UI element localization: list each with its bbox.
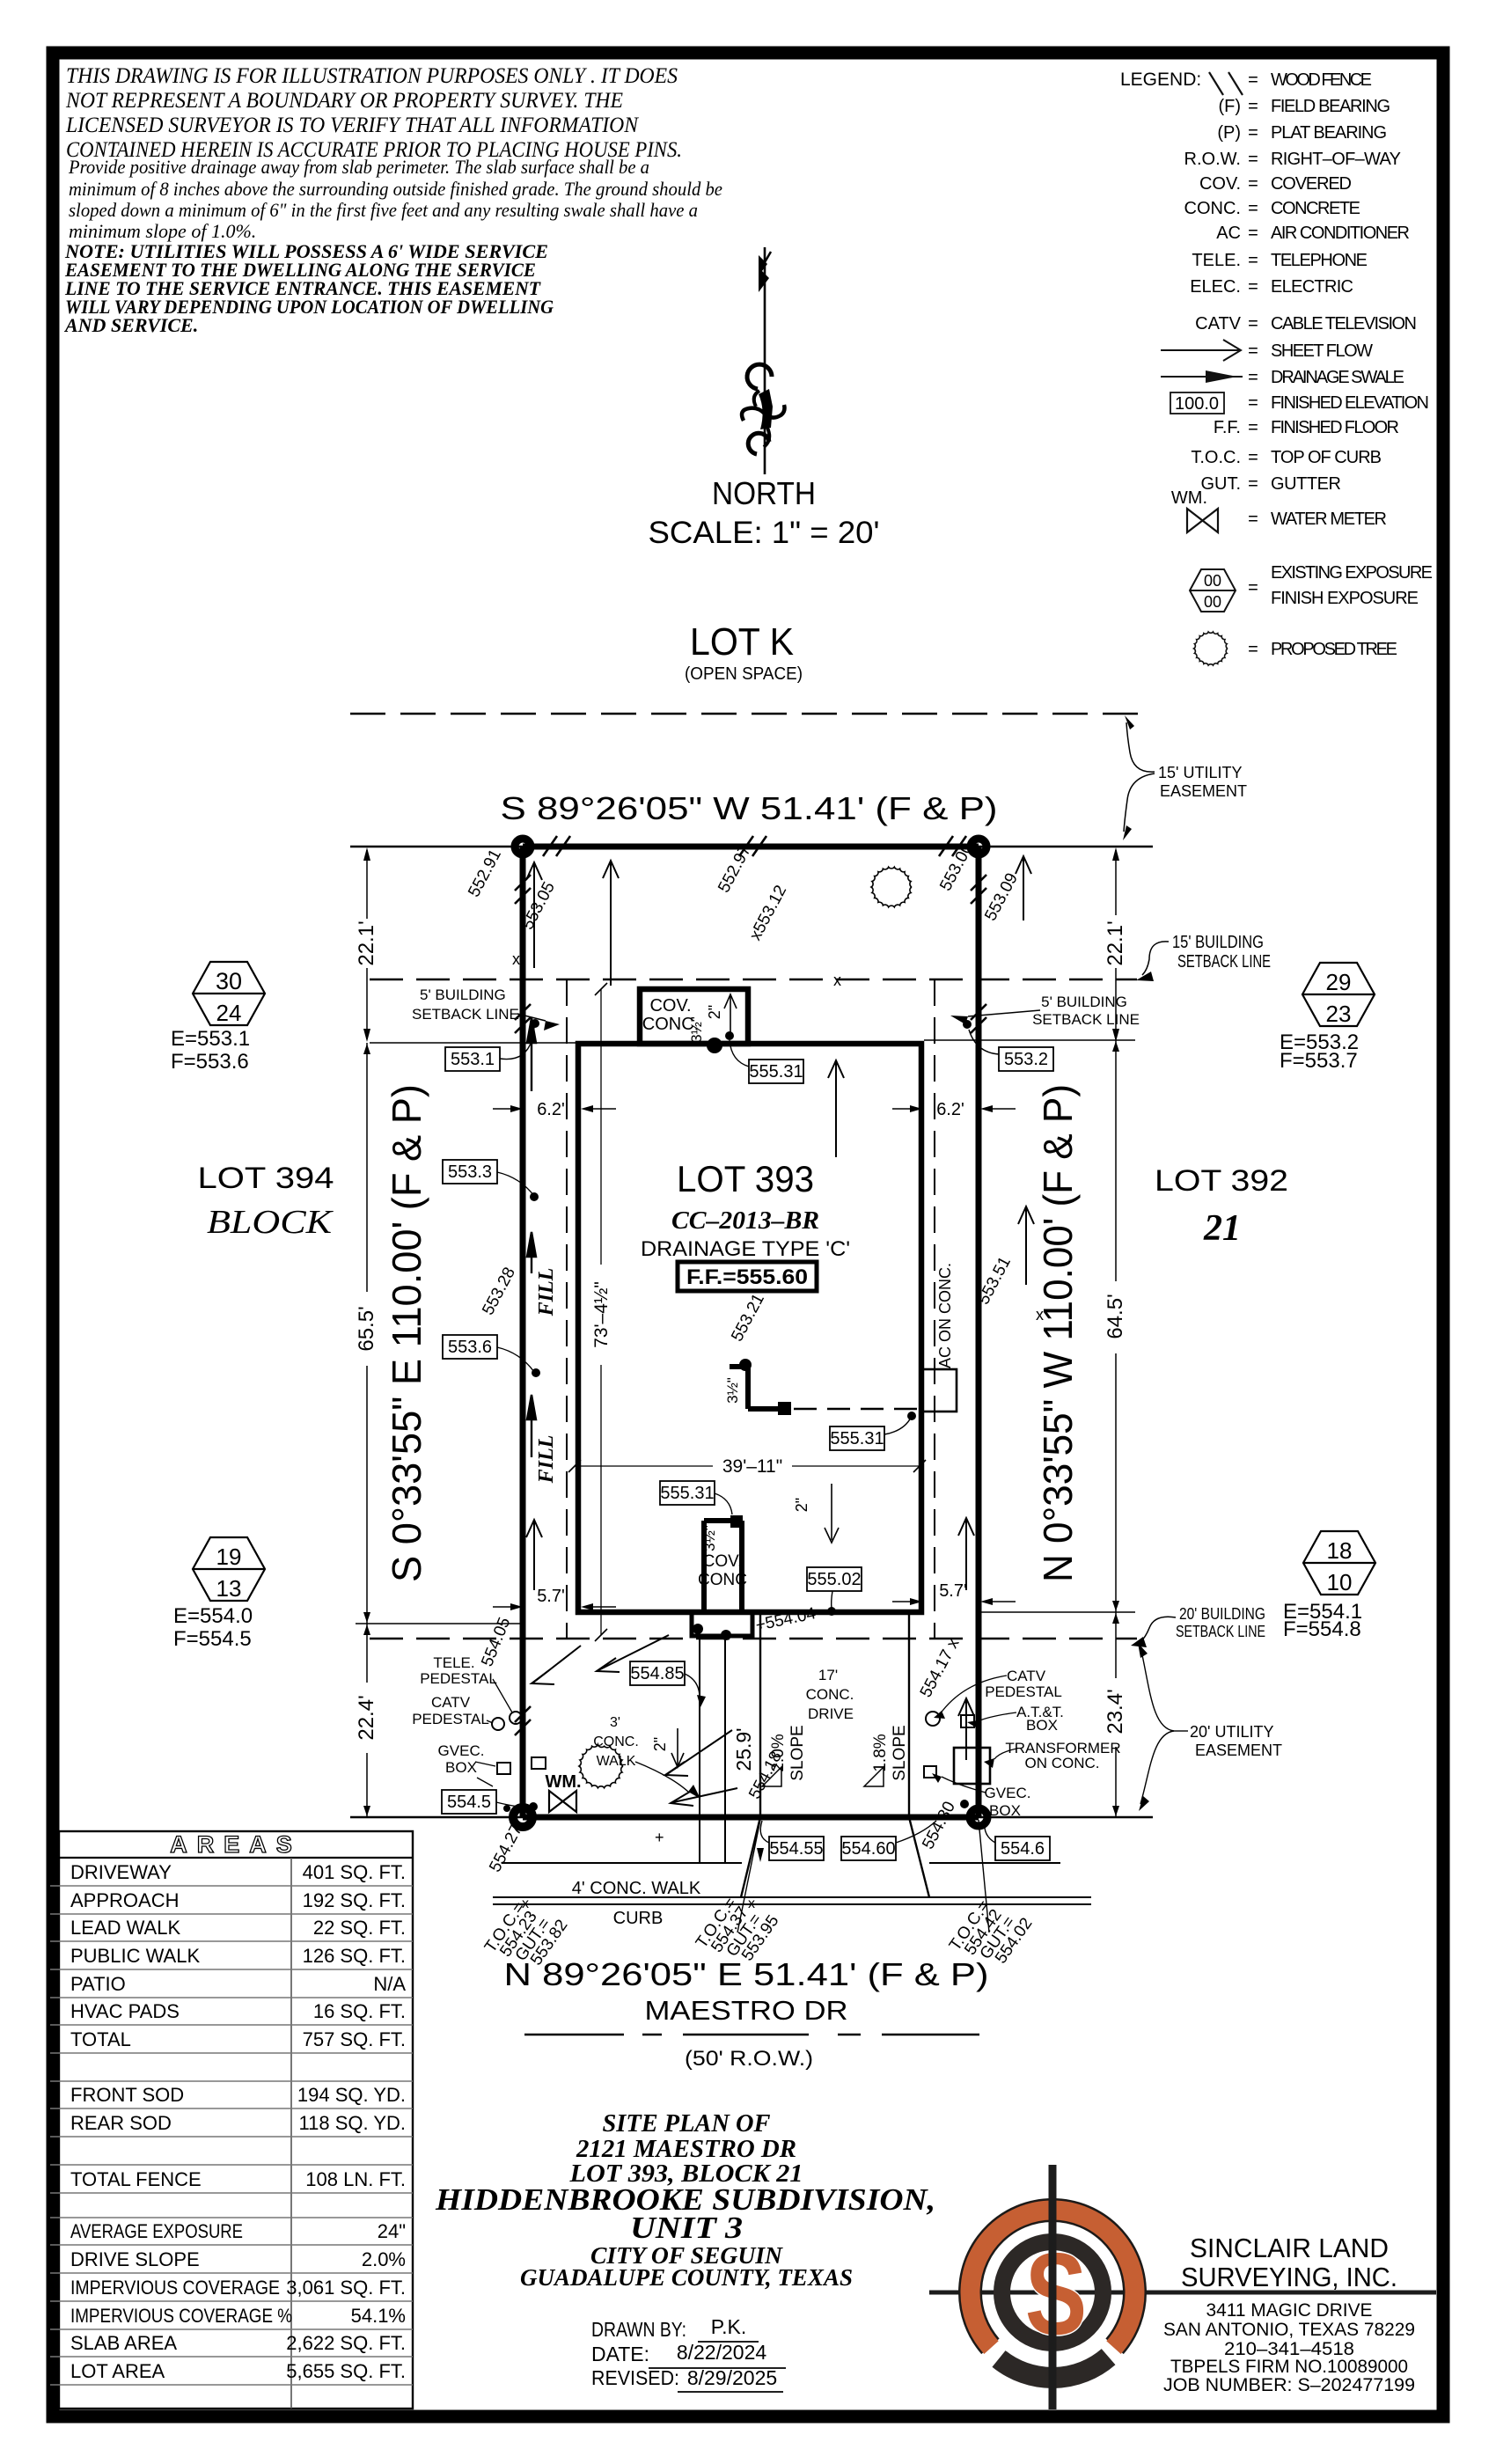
svg-text:NORTH: NORTH — [712, 475, 816, 511]
svg-text:x: x — [748, 1896, 755, 1911]
svg-text:2,622 SQ. FT.: 2,622 SQ. FT. — [286, 2332, 406, 2354]
svg-text:3': 3' — [610, 1715, 620, 1730]
svg-text:553.2: 553.2 — [1004, 1050, 1048, 1069]
svg-text:AC: AC — [1216, 224, 1241, 243]
svg-text:GVEC.: GVEC. — [438, 1742, 485, 1759]
svg-text:555.02: 555.02 — [807, 1570, 861, 1589]
svg-text:8/29/2025: 8/29/2025 — [687, 2366, 777, 2389]
svg-text:TELEPHONE: TELEPHONE — [1271, 251, 1368, 270]
svg-text:=: = — [1248, 578, 1258, 598]
svg-text:REVISED:: REVISED: — [591, 2366, 679, 2389]
svg-text:39'–11": 39'–11" — [722, 1456, 782, 1477]
svg-text:R.O.W.: R.O.W. — [1184, 150, 1241, 169]
svg-text:DRAINAGE SWALE: DRAINAGE SWALE — [1271, 368, 1404, 387]
svg-text:F.F.=555.60: F.F.=555.60 — [686, 1265, 808, 1289]
svg-text:=: = — [1248, 150, 1258, 169]
svg-text:LOT AREA: LOT AREA — [70, 2360, 165, 2382]
svg-text:AND SERVICE.: AND SERVICE. — [63, 314, 198, 336]
svg-text:BOX: BOX — [1026, 1717, 1058, 1734]
svg-text:BLOCK: BLOCK — [207, 1204, 334, 1241]
svg-text:PEDESTAL: PEDESTAL — [420, 1670, 497, 1687]
svg-text:(50' R.O.W.): (50' R.O.W.) — [685, 2047, 813, 2071]
svg-text:554.5: 554.5 — [447, 1793, 491, 1812]
svg-text:PLAT BEARING: PLAT BEARING — [1271, 123, 1387, 143]
svg-text:SETBACK LINE: SETBACK LINE — [412, 1006, 519, 1023]
svg-text:LOT 392: LOT 392 — [1155, 1164, 1288, 1198]
svg-text:6.2': 6.2' — [936, 1100, 964, 1119]
svg-text:20' UTILITY: 20' UTILITY — [1190, 1723, 1273, 1741]
svg-text:CC–2013–BR: CC–2013–BR — [671, 1207, 819, 1235]
svg-text:194 SQ. YD.: 194 SQ. YD. — [297, 2084, 406, 2106]
svg-text:S 89°26'05" W 51.41' (F & P): S 89°26'05" W 51.41' (F & P) — [501, 790, 998, 826]
svg-text:100.0: 100.0 — [1175, 394, 1219, 414]
svg-text:WALK: WALK — [597, 1754, 636, 1769]
svg-text:CURB: CURB — [613, 1909, 664, 1928]
svg-text:3,061 SQ. FT.: 3,061 SQ. FT. — [286, 2277, 406, 2299]
svg-text:=: = — [1248, 418, 1258, 437]
svg-text:LOT 394: LOT 394 — [198, 1162, 334, 1195]
svg-text:=: = — [1248, 368, 1258, 387]
svg-text:23.4': 23.4' — [1104, 1689, 1127, 1734]
svg-text:2.0%: 2.0% — [362, 2248, 406, 2270]
svg-text:15' UTILITY: 15' UTILITY — [1158, 764, 1242, 781]
svg-text:sloped down a minimum of 6" in: sloped down a minimum of 6" in the first… — [69, 199, 698, 221]
svg-text:554.27: 554.27 — [486, 1822, 526, 1875]
svg-text:HVAC PADS: HVAC PADS — [70, 2000, 180, 2022]
svg-text:Provide positive drainage away: Provide positive drainage away from slab… — [68, 156, 649, 178]
svg-text:FRONT SOD: FRONT SOD — [70, 2084, 184, 2106]
svg-text:EASEMENT: EASEMENT — [1160, 782, 1247, 800]
svg-text:+554.04: +554.04 — [754, 1604, 818, 1635]
svg-text:x: x — [522, 1896, 529, 1911]
svg-text:TELE.: TELE. — [1192, 251, 1241, 270]
svg-text:=: = — [1248, 251, 1258, 270]
svg-text:3411 MAGIC DRIVE: 3411 MAGIC DRIVE — [1206, 2299, 1373, 2321]
svg-text:FILL: FILL — [535, 1435, 558, 1485]
svg-text:22.1': 22.1' — [355, 920, 378, 965]
svg-text:553.3: 553.3 — [448, 1162, 492, 1182]
svg-text:F=553.6: F=553.6 — [171, 1050, 249, 1074]
svg-text:21: 21 — [1203, 1208, 1241, 1249]
svg-text:REAR SOD: REAR SOD — [70, 2112, 172, 2134]
svg-text:DRAINAGE TYPE 'C': DRAINAGE TYPE 'C' — [641, 1237, 850, 1261]
svg-text:GUADALUPE COUNTY, TEXAS: GUADALUPE COUNTY, TEXAS — [520, 2264, 853, 2291]
svg-text:553.09: 553.09 — [981, 870, 1022, 924]
svg-text:SETBACK LINE: SETBACK LINE — [1032, 1011, 1140, 1028]
svg-text:554.55: 554.55 — [769, 1839, 823, 1859]
svg-text:FILL: FILL — [535, 1268, 558, 1317]
svg-text:N/A: N/A — [373, 1973, 406, 1995]
svg-text:=: = — [1248, 314, 1258, 334]
svg-text:10: 10 — [1327, 1569, 1353, 1595]
svg-text:=: = — [1248, 474, 1258, 494]
svg-text:SETBACK LINE: SETBACK LINE — [1177, 952, 1271, 972]
svg-text:126 SQ. FT.: 126 SQ. FT. — [303, 1945, 406, 1967]
svg-text:=: = — [1248, 448, 1258, 467]
svg-text:19: 19 — [216, 1544, 242, 1570]
svg-text:23: 23 — [1326, 1001, 1352, 1027]
svg-text:(F): (F) — [1218, 97, 1241, 116]
svg-text:553.21: 553.21 — [728, 1291, 768, 1345]
svg-text:=: = — [1248, 640, 1258, 659]
svg-text:minimum of 8 inches above the: minimum of 8 inches above the surroundin… — [69, 178, 722, 200]
svg-text:ELECTRIC: ELECTRIC — [1271, 277, 1353, 297]
svg-text:24": 24" — [378, 2220, 406, 2242]
svg-text:SLAB AREA: SLAB AREA — [70, 2332, 177, 2354]
svg-text:JOB NUMBER: S–202477199: JOB NUMBER: S–202477199 — [1163, 2374, 1415, 2395]
svg-text:SITE PLAN OF: SITE PLAN OF — [603, 2109, 771, 2138]
svg-text:TOTAL FENCE: TOTAL FENCE — [70, 2168, 202, 2190]
svg-text:554.17 x: 554.17 x — [917, 1635, 964, 1701]
svg-text:5' BUILDING: 5' BUILDING — [420, 986, 506, 1003]
svg-text:555.31: 555.31 — [660, 1484, 714, 1503]
svg-text:401 SQ. FT.: 401 SQ. FT. — [303, 1861, 406, 1883]
svg-text:PATIO: PATIO — [70, 1973, 126, 1995]
svg-text:UNIT 3: UNIT 3 — [630, 2211, 743, 2245]
svg-text:FINISHED FLOOR: FINISHED FLOOR — [1271, 418, 1399, 437]
svg-text:BOX: BOX — [445, 1759, 477, 1776]
svg-text:3½": 3½" — [724, 1377, 741, 1404]
svg-text:CONC.: CONC. — [806, 1686, 854, 1703]
svg-text:SAN ANTONIO, TEXAS 78229: SAN ANTONIO, TEXAS 78229 — [1163, 2319, 1415, 2340]
svg-text:LICENSED SURVEYOR IS TO VERIFY: LICENSED SURVEYOR IS TO VERIFY THAT ALL … — [65, 114, 639, 137]
svg-text:E=553.1: E=553.1 — [171, 1027, 250, 1051]
svg-text:=: = — [1248, 70, 1258, 90]
svg-text:5' BUILDING: 5' BUILDING — [1041, 994, 1127, 1010]
svg-text:=: = — [1248, 341, 1258, 361]
svg-text:GVEC.: GVEC. — [985, 1785, 1031, 1801]
svg-text:554.6: 554.6 — [1001, 1839, 1045, 1859]
svg-text:S 0°33'55" E 110.00' (F & P): S 0°33'55" E 110.00' (F & P) — [384, 1084, 429, 1582]
svg-text:553.28: 553.28 — [479, 1265, 519, 1318]
svg-text:(OPEN SPACE): (OPEN SPACE) — [685, 664, 803, 684]
svg-text:CONC.: CONC. — [593, 1734, 639, 1749]
svg-text:=: = — [1248, 393, 1258, 413]
svg-text:LEAD WALK: LEAD WALK — [70, 1917, 180, 1939]
svg-text:2": 2" — [651, 1737, 669, 1751]
svg-text:555.31: 555.31 — [830, 1429, 884, 1448]
svg-text:DRIVEWAY: DRIVEWAY — [70, 1861, 172, 1883]
svg-text:553.6: 553.6 — [448, 1338, 492, 1357]
svg-text:00: 00 — [1204, 593, 1221, 611]
svg-text:AREAS: AREAS — [170, 1831, 302, 1858]
svg-text:AC ON CONC.: AC ON CONC. — [936, 1263, 954, 1368]
svg-text:22.1': 22.1' — [1104, 920, 1127, 965]
svg-text:LEGEND:: LEGEND: — [1120, 70, 1201, 90]
svg-text:FIELD BEARING: FIELD BEARING — [1271, 97, 1390, 116]
svg-text:(P): (P) — [1217, 123, 1241, 143]
svg-text:SURVEYING, INC.: SURVEYING, INC. — [1181, 2262, 1397, 2292]
svg-text:x: x — [1036, 1306, 1044, 1324]
svg-text:2": 2" — [793, 1498, 810, 1512]
svg-text:CABLE TELEVISION: CABLE TELEVISION — [1271, 314, 1417, 334]
svg-text:SETBACK LINE: SETBACK LINE — [1176, 1623, 1265, 1640]
svg-text:DATE:: DATE: — [591, 2343, 649, 2365]
svg-text:WOOD FENCE: WOOD FENCE — [1271, 70, 1372, 90]
svg-text:54.1%: 54.1% — [351, 2305, 406, 2327]
svg-text:COV.: COV. — [649, 996, 691, 1016]
svg-text:PEDESTAL: PEDESTAL — [985, 1683, 1062, 1700]
svg-text:F=553.7: F=553.7 — [1280, 1049, 1358, 1073]
svg-text:COVERED: COVERED — [1271, 174, 1352, 194]
svg-text:ELEC.: ELEC. — [1190, 277, 1241, 297]
svg-text:=: = — [1248, 199, 1258, 218]
svg-text:E=554.0: E=554.0 — [173, 1604, 253, 1628]
svg-text:GUTTER: GUTTER — [1271, 474, 1341, 494]
svg-text:553.1: 553.1 — [451, 1050, 495, 1069]
svg-text:FINISH EXPOSURE: FINISH EXPOSURE — [1271, 589, 1419, 608]
svg-text:N 0°33'55" W 110.00' (F & P): N 0°33'55" W 110.00' (F & P) — [1035, 1084, 1081, 1582]
svg-text:65.5': 65.5' — [355, 1306, 378, 1351]
svg-text:TELE.: TELE. — [433, 1654, 474, 1671]
svg-text:SCALE: 1" = 20': SCALE: 1" = 20' — [649, 516, 880, 550]
svg-text:PUBLIC WALK: PUBLIC WALK — [70, 1945, 200, 1967]
svg-text:CATV: CATV — [431, 1694, 471, 1711]
svg-text:25.9': 25.9' — [732, 1727, 755, 1771]
svg-text:CONCRETE: CONCRETE — [1271, 199, 1360, 218]
svg-text:F=554.8: F=554.8 — [1283, 1617, 1361, 1641]
svg-text:LOT K: LOT K — [690, 620, 794, 664]
svg-text:IMPERVIOUS COVERAGE: IMPERVIOUS COVERAGE — [70, 2277, 280, 2299]
svg-text:PEDESTAL: PEDESTAL — [412, 1711, 489, 1727]
svg-text:2": 2" — [706, 1005, 723, 1019]
svg-text:AIR CONDITIONER: AIR CONDITIONER — [1271, 224, 1410, 243]
svg-text:00: 00 — [1204, 572, 1221, 590]
svg-text:552.97: 552.97 — [715, 842, 755, 896]
svg-text:BOX: BOX — [989, 1802, 1021, 1819]
svg-text:IMPERVIOUS COVERAGE %: IMPERVIOUS COVERAGE % — [70, 2305, 292, 2327]
svg-text:SINCLAIR LAND: SINCLAIR LAND — [1190, 2233, 1389, 2263]
svg-text:2.0%: 2.0% — [769, 1734, 788, 1771]
svg-text:SLOPE: SLOPE — [788, 1725, 807, 1780]
svg-text:4' CONC. WALK: 4' CONC. WALK — [572, 1879, 701, 1898]
svg-text:6.2': 6.2' — [537, 1100, 565, 1119]
svg-text:CATV: CATV — [1007, 1668, 1046, 1684]
svg-text:LOT 393: LOT 393 — [677, 1158, 814, 1199]
svg-text:554.60: 554.60 — [841, 1839, 895, 1859]
svg-text:CONC.: CONC. — [1184, 199, 1241, 218]
svg-text:555.31: 555.31 — [749, 1062, 803, 1082]
svg-text:=: = — [1248, 97, 1258, 116]
svg-text:CONC: CONC — [698, 1571, 747, 1589]
svg-text:118 SQ. YD.: 118 SQ. YD. — [299, 2112, 406, 2134]
svg-text:15' BUILDING: 15' BUILDING — [1172, 933, 1264, 952]
svg-text:x: x — [512, 950, 520, 968]
svg-text:THIS DRAWING IS FOR ILLUSTRATI: THIS DRAWING IS FOR ILLUSTRATION PURPOSE… — [66, 64, 678, 88]
svg-text:1.8%: 1.8% — [871, 1734, 890, 1771]
svg-text:64.5': 64.5' — [1104, 1294, 1127, 1338]
svg-text:F=554.5: F=554.5 — [173, 1627, 252, 1651]
svg-text:WATER METER: WATER METER — [1271, 510, 1387, 529]
svg-text:24: 24 — [216, 1000, 242, 1026]
svg-text:EXISTING EXPOSURE: EXISTING EXPOSURE — [1271, 563, 1433, 583]
svg-text:757 SQ. FT.: 757 SQ. FT. — [303, 2028, 406, 2050]
svg-text:FINISHED ELEVATION: FINISHED ELEVATION — [1271, 393, 1429, 413]
svg-text:5.7': 5.7' — [939, 1581, 967, 1601]
svg-text:+: + — [655, 1829, 664, 1846]
svg-text:29: 29 — [1326, 969, 1352, 995]
svg-text:30: 30 — [216, 968, 242, 994]
svg-text:=: = — [1248, 277, 1258, 297]
svg-text:108 LN. FT.: 108 LN. FT. — [305, 2168, 406, 2190]
svg-text:SLOPE: SLOPE — [891, 1725, 909, 1780]
svg-text:COV.: COV. — [1199, 174, 1241, 194]
svg-text:COV.: COV. — [703, 1552, 743, 1571]
svg-text:DRIVE: DRIVE — [808, 1705, 854, 1722]
svg-text:F.F.: F.F. — [1214, 418, 1241, 437]
svg-text:22 SQ. FT.: 22 SQ. FT. — [313, 1917, 406, 1939]
svg-text:SHEET FLOW: SHEET FLOW — [1271, 341, 1373, 361]
svg-text:73'–4½": 73'–4½" — [591, 1281, 612, 1348]
svg-text:DRAWN BY:: DRAWN BY: — [591, 2318, 686, 2341]
svg-text:AVERAGE EXPOSURE: AVERAGE EXPOSURE — [70, 2220, 243, 2242]
svg-text:5.7': 5.7' — [537, 1587, 565, 1606]
svg-text:TOTAL: TOTAL — [70, 2028, 131, 2050]
svg-text:3½": 3½" — [701, 1525, 718, 1551]
svg-text:8/22/2024: 8/22/2024 — [677, 2341, 767, 2364]
svg-text:x553.12: x553.12 — [746, 883, 790, 944]
svg-text:CATV: CATV — [1195, 314, 1242, 334]
svg-text:=: = — [1248, 123, 1258, 143]
svg-text:17': 17' — [818, 1667, 838, 1683]
svg-text:18: 18 — [1327, 1537, 1353, 1564]
svg-text:3½": 3½" — [688, 1016, 705, 1043]
svg-text:554.30: 554.30 — [919, 1799, 959, 1852]
svg-text:16 SQ. FT.: 16 SQ. FT. — [313, 2000, 406, 2022]
svg-text:5,655 SQ. FT.: 5,655 SQ. FT. — [286, 2360, 406, 2382]
svg-text:RIGHT–OF–WAY: RIGHT–OF–WAY — [1271, 150, 1401, 169]
svg-text:T.O.C.: T.O.C. — [1191, 448, 1241, 467]
svg-text:EASEMENT: EASEMENT — [1195, 1742, 1282, 1759]
svg-text:=: = — [1248, 510, 1258, 529]
svg-text:=: = — [1248, 224, 1258, 243]
svg-text:x: x — [833, 972, 841, 989]
svg-text:552.91: 552.91 — [465, 847, 505, 900]
svg-text:APPROACH: APPROACH — [70, 1889, 179, 1911]
svg-text:minimum slope of 1.0%.: minimum slope of 1.0%. — [69, 220, 256, 242]
svg-text:DRIVE SLOPE: DRIVE SLOPE — [70, 2248, 200, 2270]
svg-text:TOP OF CURB: TOP OF CURB — [1271, 448, 1382, 467]
svg-text:13: 13 — [216, 1575, 242, 1602]
svg-text:20' BUILDING: 20' BUILDING — [1179, 1605, 1265, 1623]
svg-text:N 89°26'05" E 51.41' (F & P): N 89°26'05" E 51.41' (F & P) — [504, 1956, 989, 1992]
svg-text:=: = — [1248, 174, 1258, 194]
svg-text:MAESTRO DR: MAESTRO DR — [645, 1995, 848, 2026]
svg-text:PROPOSED TREE: PROPOSED TREE — [1271, 640, 1397, 659]
svg-text:22.4': 22.4' — [355, 1695, 378, 1740]
svg-text:554.85: 554.85 — [630, 1664, 684, 1683]
svg-text:NOT REPRESENT A BOUNDARY OR PR: NOT REPRESENT A BOUNDARY OR PROPERTY SUR… — [65, 89, 623, 113]
svg-text:192 SQ. FT.: 192 SQ. FT. — [303, 1889, 406, 1911]
svg-text:WM.: WM. — [1171, 488, 1207, 508]
svg-text:P.K.: P.K. — [711, 2315, 747, 2338]
svg-text:WM.: WM. — [545, 1772, 581, 1792]
svg-text:ON CONC.: ON CONC. — [1025, 1755, 1100, 1771]
